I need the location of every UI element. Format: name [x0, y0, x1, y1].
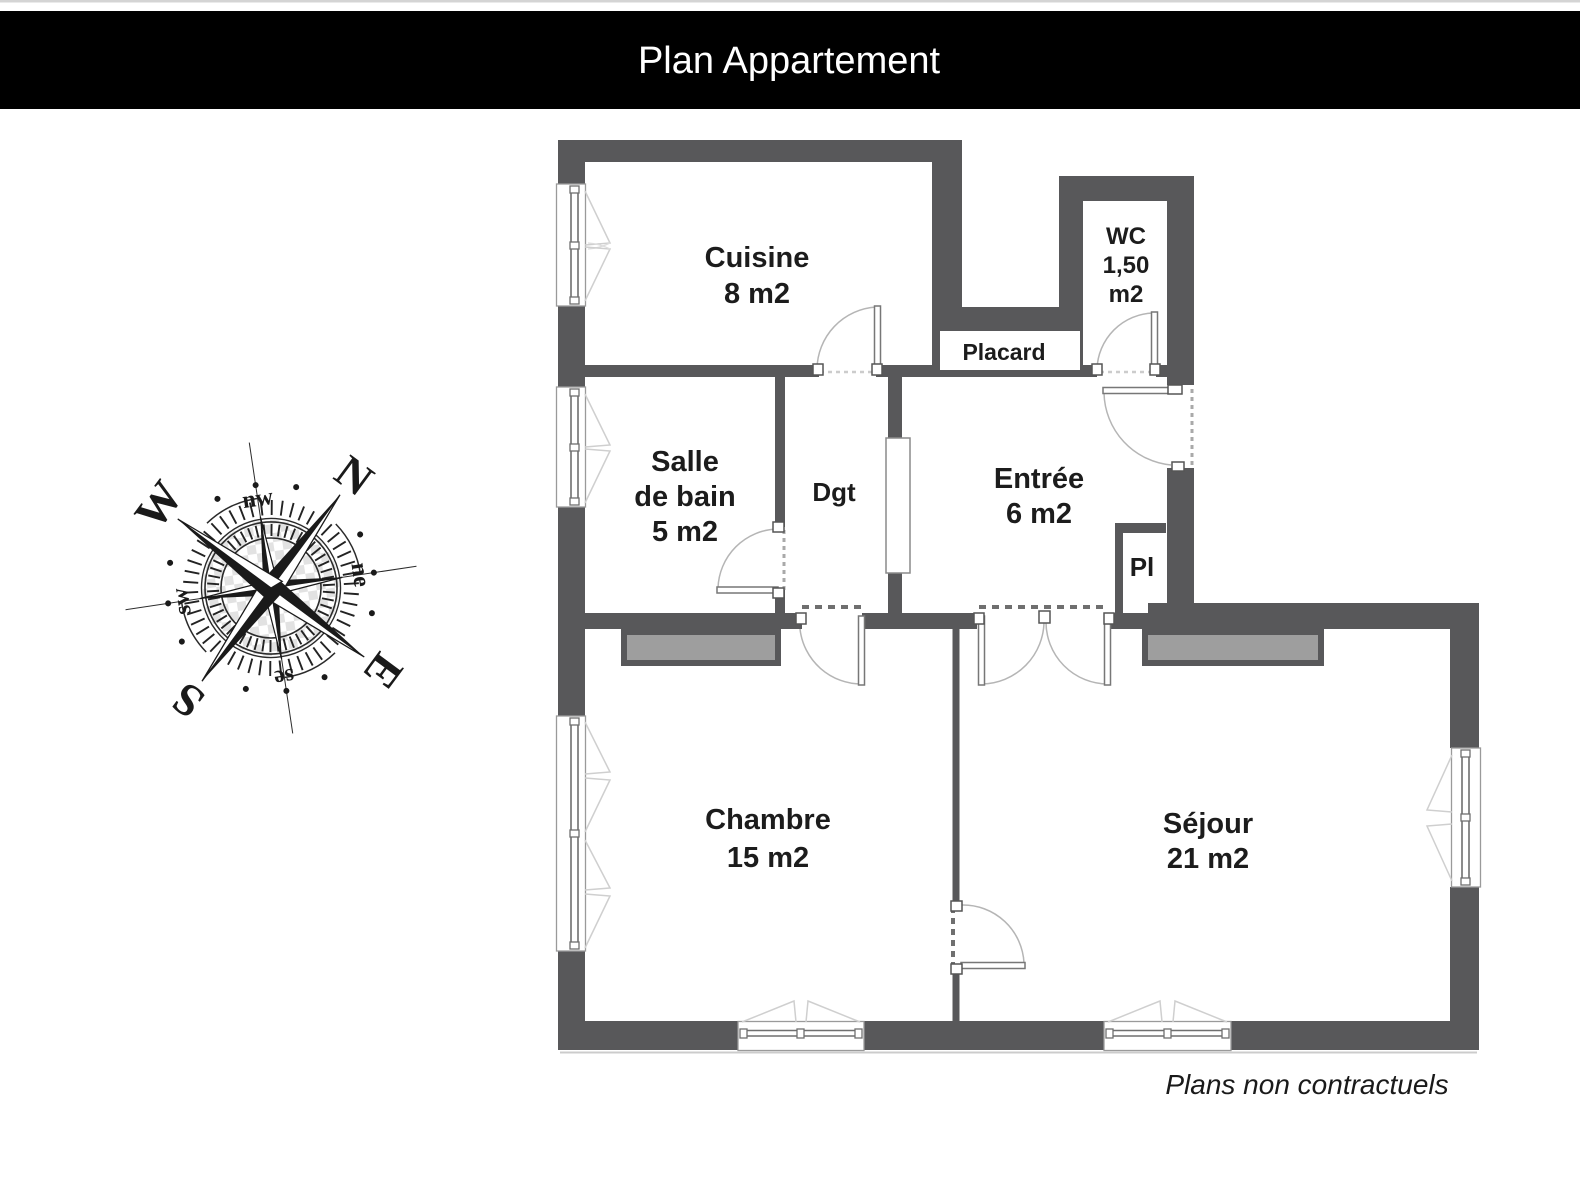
svg-text:nw: nw	[241, 484, 276, 514]
svg-text:Placard: Placard	[962, 339, 1045, 365]
svg-text:15 m2: 15 m2	[727, 842, 809, 874]
svg-text:WC: WC	[1106, 223, 1146, 250]
svg-text:Chambre: Chambre	[705, 804, 831, 836]
svg-text:Entrée: Entrée	[994, 463, 1084, 495]
svg-text:Séjour: Séjour	[1163, 808, 1253, 840]
svg-text:21 m2: 21 m2	[1167, 843, 1249, 875]
svg-text:sw: sw	[167, 586, 197, 617]
svg-text:6 m2: 6 m2	[1006, 498, 1072, 530]
svg-text:Plans non contractuels: Plans non contractuels	[1165, 1069, 1448, 1100]
svg-text:1,50: 1,50	[1103, 252, 1150, 279]
svg-text:ne: ne	[345, 561, 374, 589]
svg-text:Plan Appartement: Plan Appartement	[638, 40, 941, 82]
svg-text:Cuisine: Cuisine	[705, 242, 810, 274]
svg-text:de bain: de bain	[634, 481, 736, 513]
svg-text:m2: m2	[1109, 281, 1144, 308]
svg-text:Salle: Salle	[651, 446, 719, 478]
svg-text:Pl: Pl	[1130, 552, 1155, 582]
svg-text:Dgt: Dgt	[812, 477, 856, 507]
svg-text:8 m2: 8 m2	[724, 278, 790, 310]
svg-text:5 m2: 5 m2	[652, 516, 718, 548]
svg-text:se: se	[272, 663, 296, 692]
